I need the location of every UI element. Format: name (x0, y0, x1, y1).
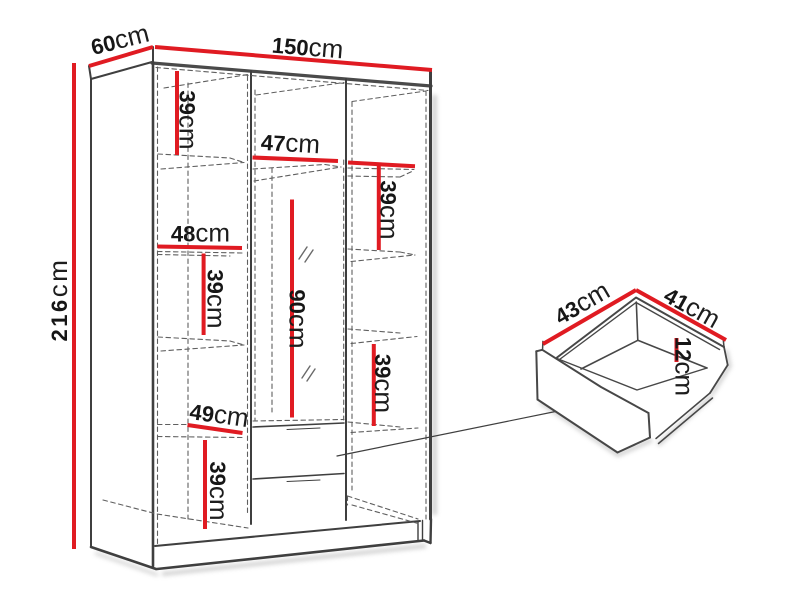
svg-text:39cm: 39cm (174, 90, 204, 149)
svg-text:48cm: 48cm (171, 218, 230, 248)
svg-text:216cm: 216cm (43, 258, 73, 342)
svg-text:39cm: 39cm (369, 354, 399, 413)
svg-text:39cm: 39cm (202, 269, 232, 328)
svg-text:39cm: 39cm (375, 180, 405, 239)
svg-text:90cm: 90cm (284, 289, 314, 348)
svg-text:47cm: 47cm (260, 126, 321, 160)
svg-text:39cm: 39cm (204, 461, 234, 520)
svg-text:12cm: 12cm (670, 337, 700, 396)
